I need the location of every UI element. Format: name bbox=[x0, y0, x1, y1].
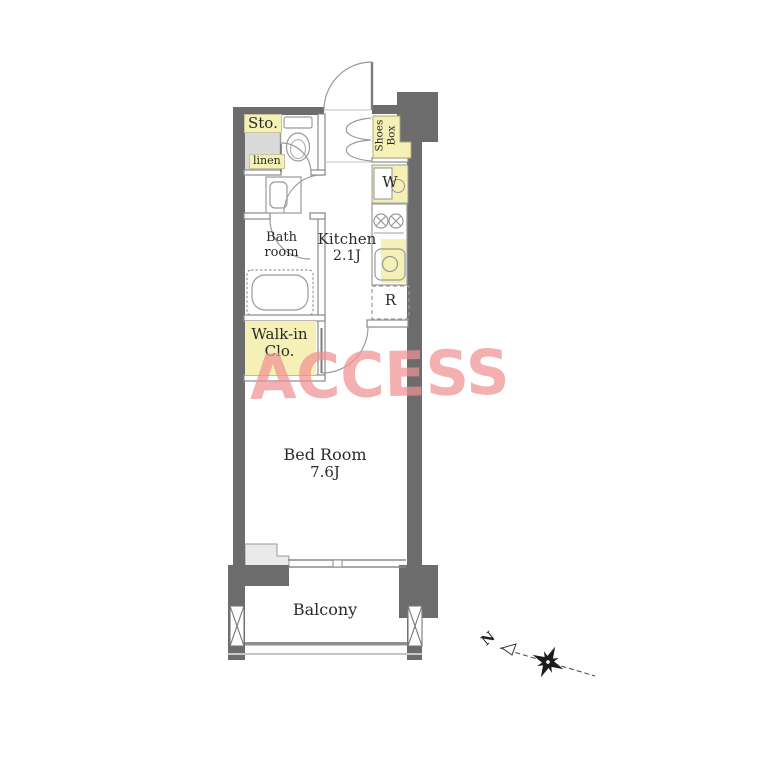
compass bbox=[500, 639, 595, 684]
compass-north-arrow bbox=[502, 644, 516, 655]
entrance-door-swing bbox=[324, 62, 372, 110]
bathroom-label: Bath room bbox=[254, 231, 309, 261]
balcony-window bbox=[288, 560, 406, 567]
floor-plan: Sto. linen ShoesBox W Kitchen 2.1J R Bat… bbox=[0, 0, 768, 768]
bedroom-pillar-step bbox=[245, 544, 289, 568]
shoes-box-doors bbox=[346, 118, 371, 161]
storage-label: Sto. bbox=[244, 114, 282, 133]
balcony-rail bbox=[245, 642, 407, 646]
wall-top-right-stub bbox=[372, 105, 399, 114]
sink-highlight bbox=[381, 239, 406, 283]
washer-label: W bbox=[372, 174, 408, 191]
linen-label: linen bbox=[249, 154, 285, 169]
shoes-box-label: ShoesBox bbox=[371, 114, 401, 158]
refrigerator-label: R bbox=[372, 292, 409, 309]
balcony-label: Balcony bbox=[285, 601, 365, 619]
wall-top-right-block bbox=[397, 92, 438, 142]
toilet-icon bbox=[284, 117, 312, 161]
watermark: ACCESS bbox=[249, 342, 510, 409]
balcony-outer-edge bbox=[228, 653, 422, 655]
kitchen-label: Kitchen 2.1J bbox=[317, 231, 377, 264]
vanity-icon bbox=[266, 177, 301, 213]
compass-rose-icon bbox=[525, 639, 570, 684]
bathtub-icon bbox=[247, 270, 313, 315]
bedroom-label: Bed Room 7.6J bbox=[275, 446, 375, 482]
